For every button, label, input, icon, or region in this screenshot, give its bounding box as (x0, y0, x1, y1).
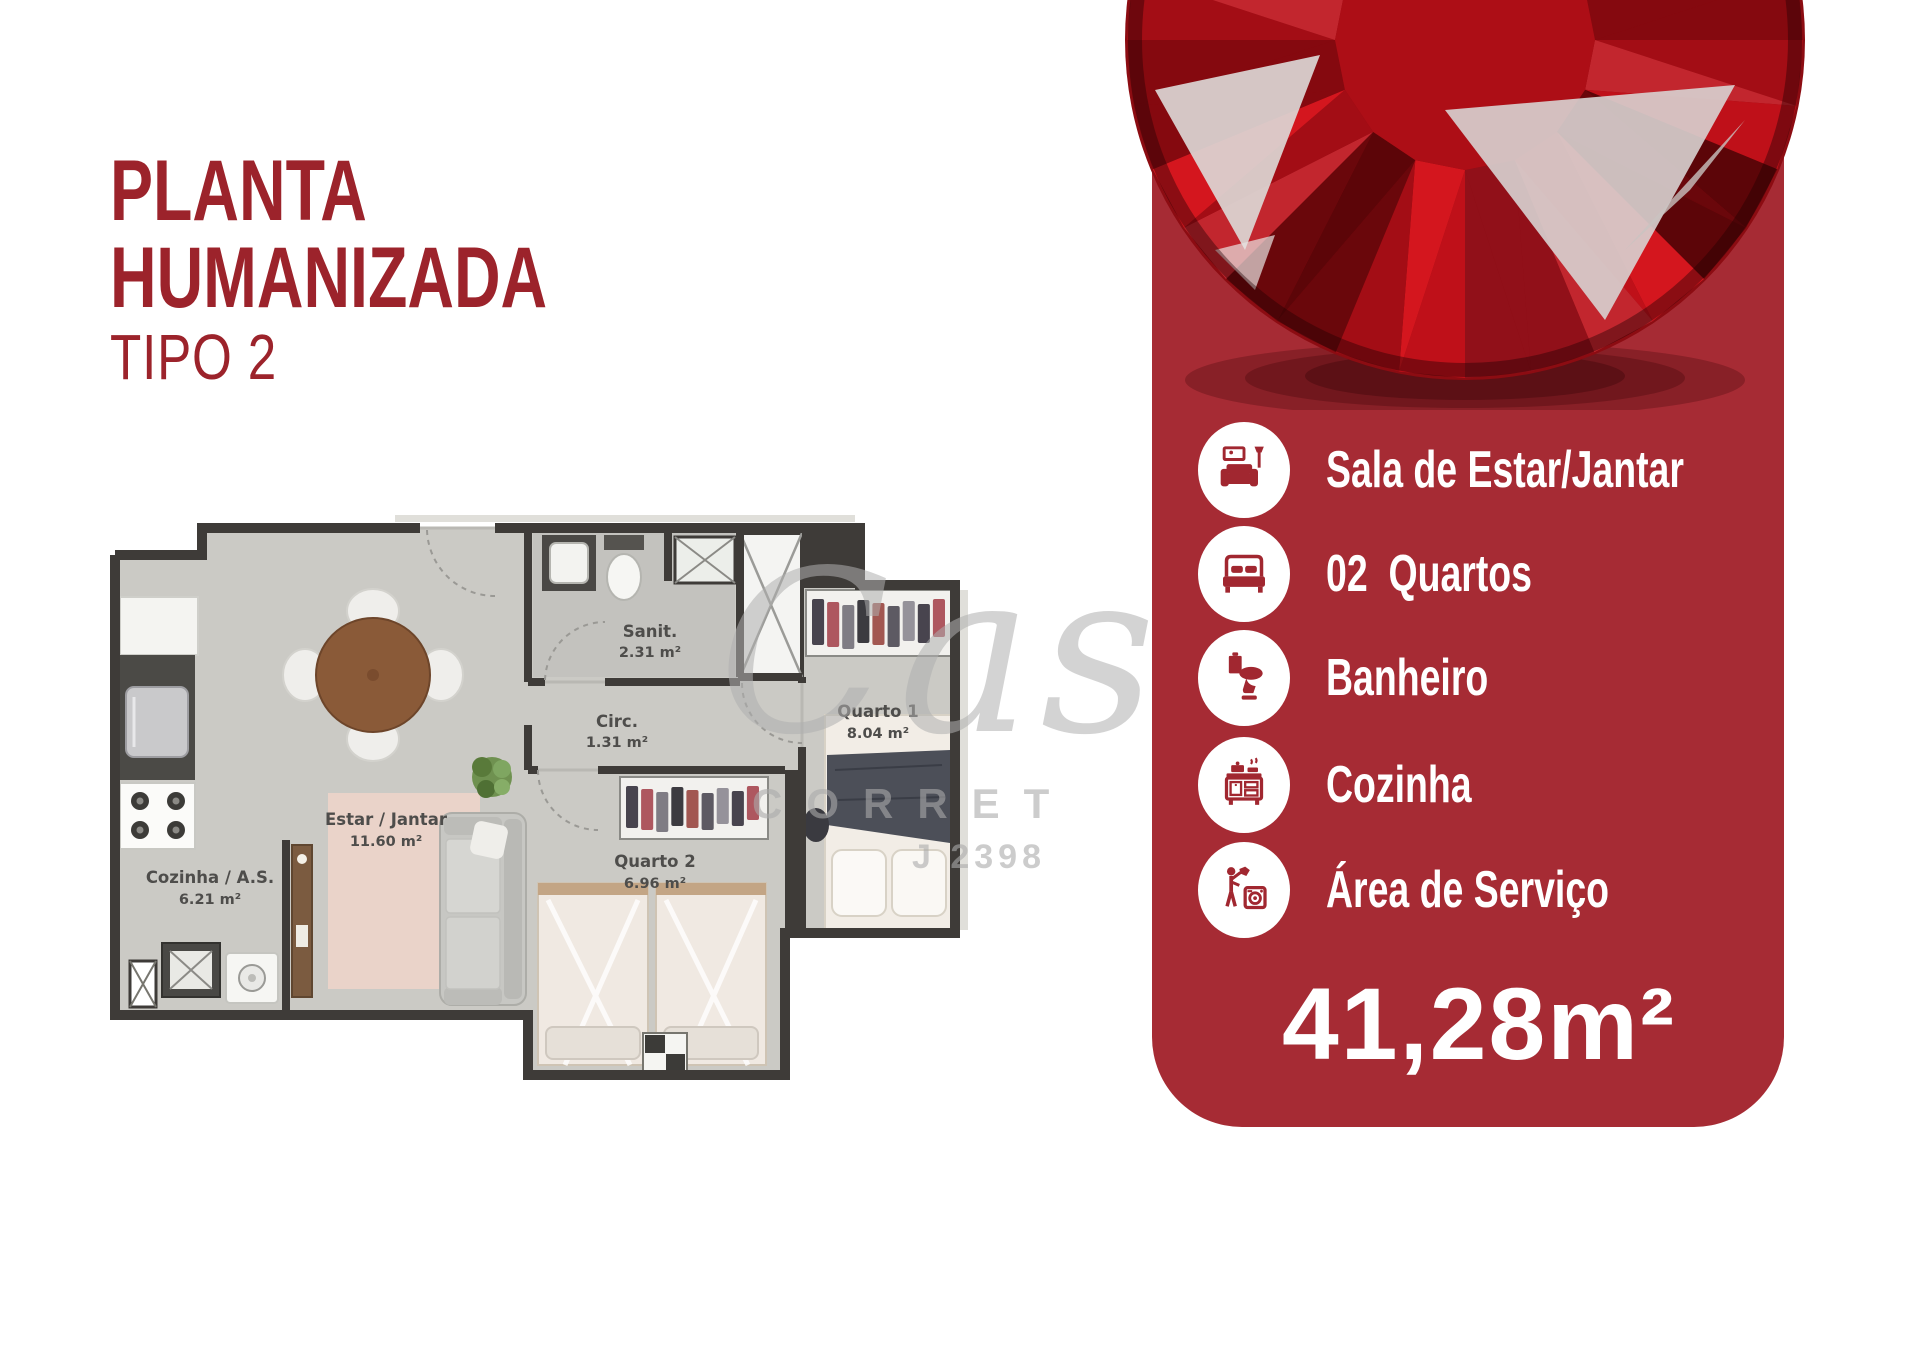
room-area-cozinha: 6.21 m² (179, 892, 241, 908)
corner-window (130, 961, 156, 1007)
bathroom-vanity (542, 535, 596, 591)
nightstand (643, 1033, 687, 1073)
room-label-quarto2: Quarto 2 (614, 852, 696, 871)
room-area-quarto2: 6.96 m² (624, 876, 686, 892)
plant (472, 757, 512, 798)
feature-row-banheiro: Banheiro (1198, 630, 1551, 726)
sofa-icon (1198, 422, 1290, 518)
stove-icon (1198, 737, 1290, 833)
page-subtitle: TIPO 2 (110, 320, 277, 394)
feature-row-cozinha: Cozinha (1198, 737, 1528, 833)
bed-icon (1198, 526, 1290, 622)
bed-q2-left (538, 883, 648, 1065)
room-label-quarto1: Quarto 1 (837, 702, 919, 721)
washing-machine (226, 953, 278, 1003)
wall-pier (802, 528, 860, 588)
feature-label-quartos: 02 Quartos (1326, 544, 1532, 604)
feature-label-banheiro: Banheiro (1326, 648, 1488, 708)
wardrobe-q2-clothes (626, 786, 759, 832)
feature-row-sala: Sala de Estar/Jantar (1198, 422, 1823, 518)
ledge-top (395, 515, 855, 522)
sofa (440, 813, 526, 1005)
room-label-circ: Circ. (596, 712, 638, 731)
flyer: PLANTA HUMANIZADA TIPO 2 (0, 0, 1920, 1357)
kitchen-cabinet (118, 597, 198, 780)
page-title: PLANTA HUMANIZADA (110, 148, 547, 322)
laundry-icon (1198, 842, 1290, 938)
room-area-estar: 11.60 m² (350, 834, 422, 850)
shower-box (675, 537, 735, 583)
room-area-circ: 1.31 m² (586, 735, 648, 751)
toilet-icon (1198, 630, 1290, 726)
wardrobe-q1-clothes (812, 599, 945, 649)
total-area: 41,28m² (1282, 966, 1676, 1083)
feature-label-cozinha: Cozinha (1326, 755, 1472, 815)
title-line-2: HUMANIZADA (110, 235, 547, 322)
laundry-tub (162, 943, 220, 997)
tv-console (292, 845, 312, 997)
ledge-right (960, 590, 968, 930)
stove (120, 783, 195, 849)
room-area-quarto1: 8.04 m² (847, 726, 909, 742)
shaft-box (740, 533, 802, 677)
room-area-sanit: 2.31 m² (619, 645, 681, 661)
feature-row-quartos: 02 Quartos (1198, 526, 1612, 622)
title-line-1: PLANTA (110, 148, 547, 235)
room-label-sanit: Sanit. (623, 622, 678, 641)
feature-row-servico: Área de Serviço (1198, 842, 1719, 938)
room-label-estar: Estar / Jantar (325, 810, 448, 829)
room-label-cozinha: Cozinha / A.S. (146, 868, 274, 887)
bed-q1 (803, 715, 952, 930)
toilet (604, 535, 644, 600)
feature-label-servico: Área de Serviço (1326, 860, 1609, 920)
floor-plan: Cozinha / A.S. 6.21 m² Estar / Jantar 11… (90, 425, 980, 1085)
feature-label-sala: Sala de Estar/Jantar (1326, 440, 1684, 500)
